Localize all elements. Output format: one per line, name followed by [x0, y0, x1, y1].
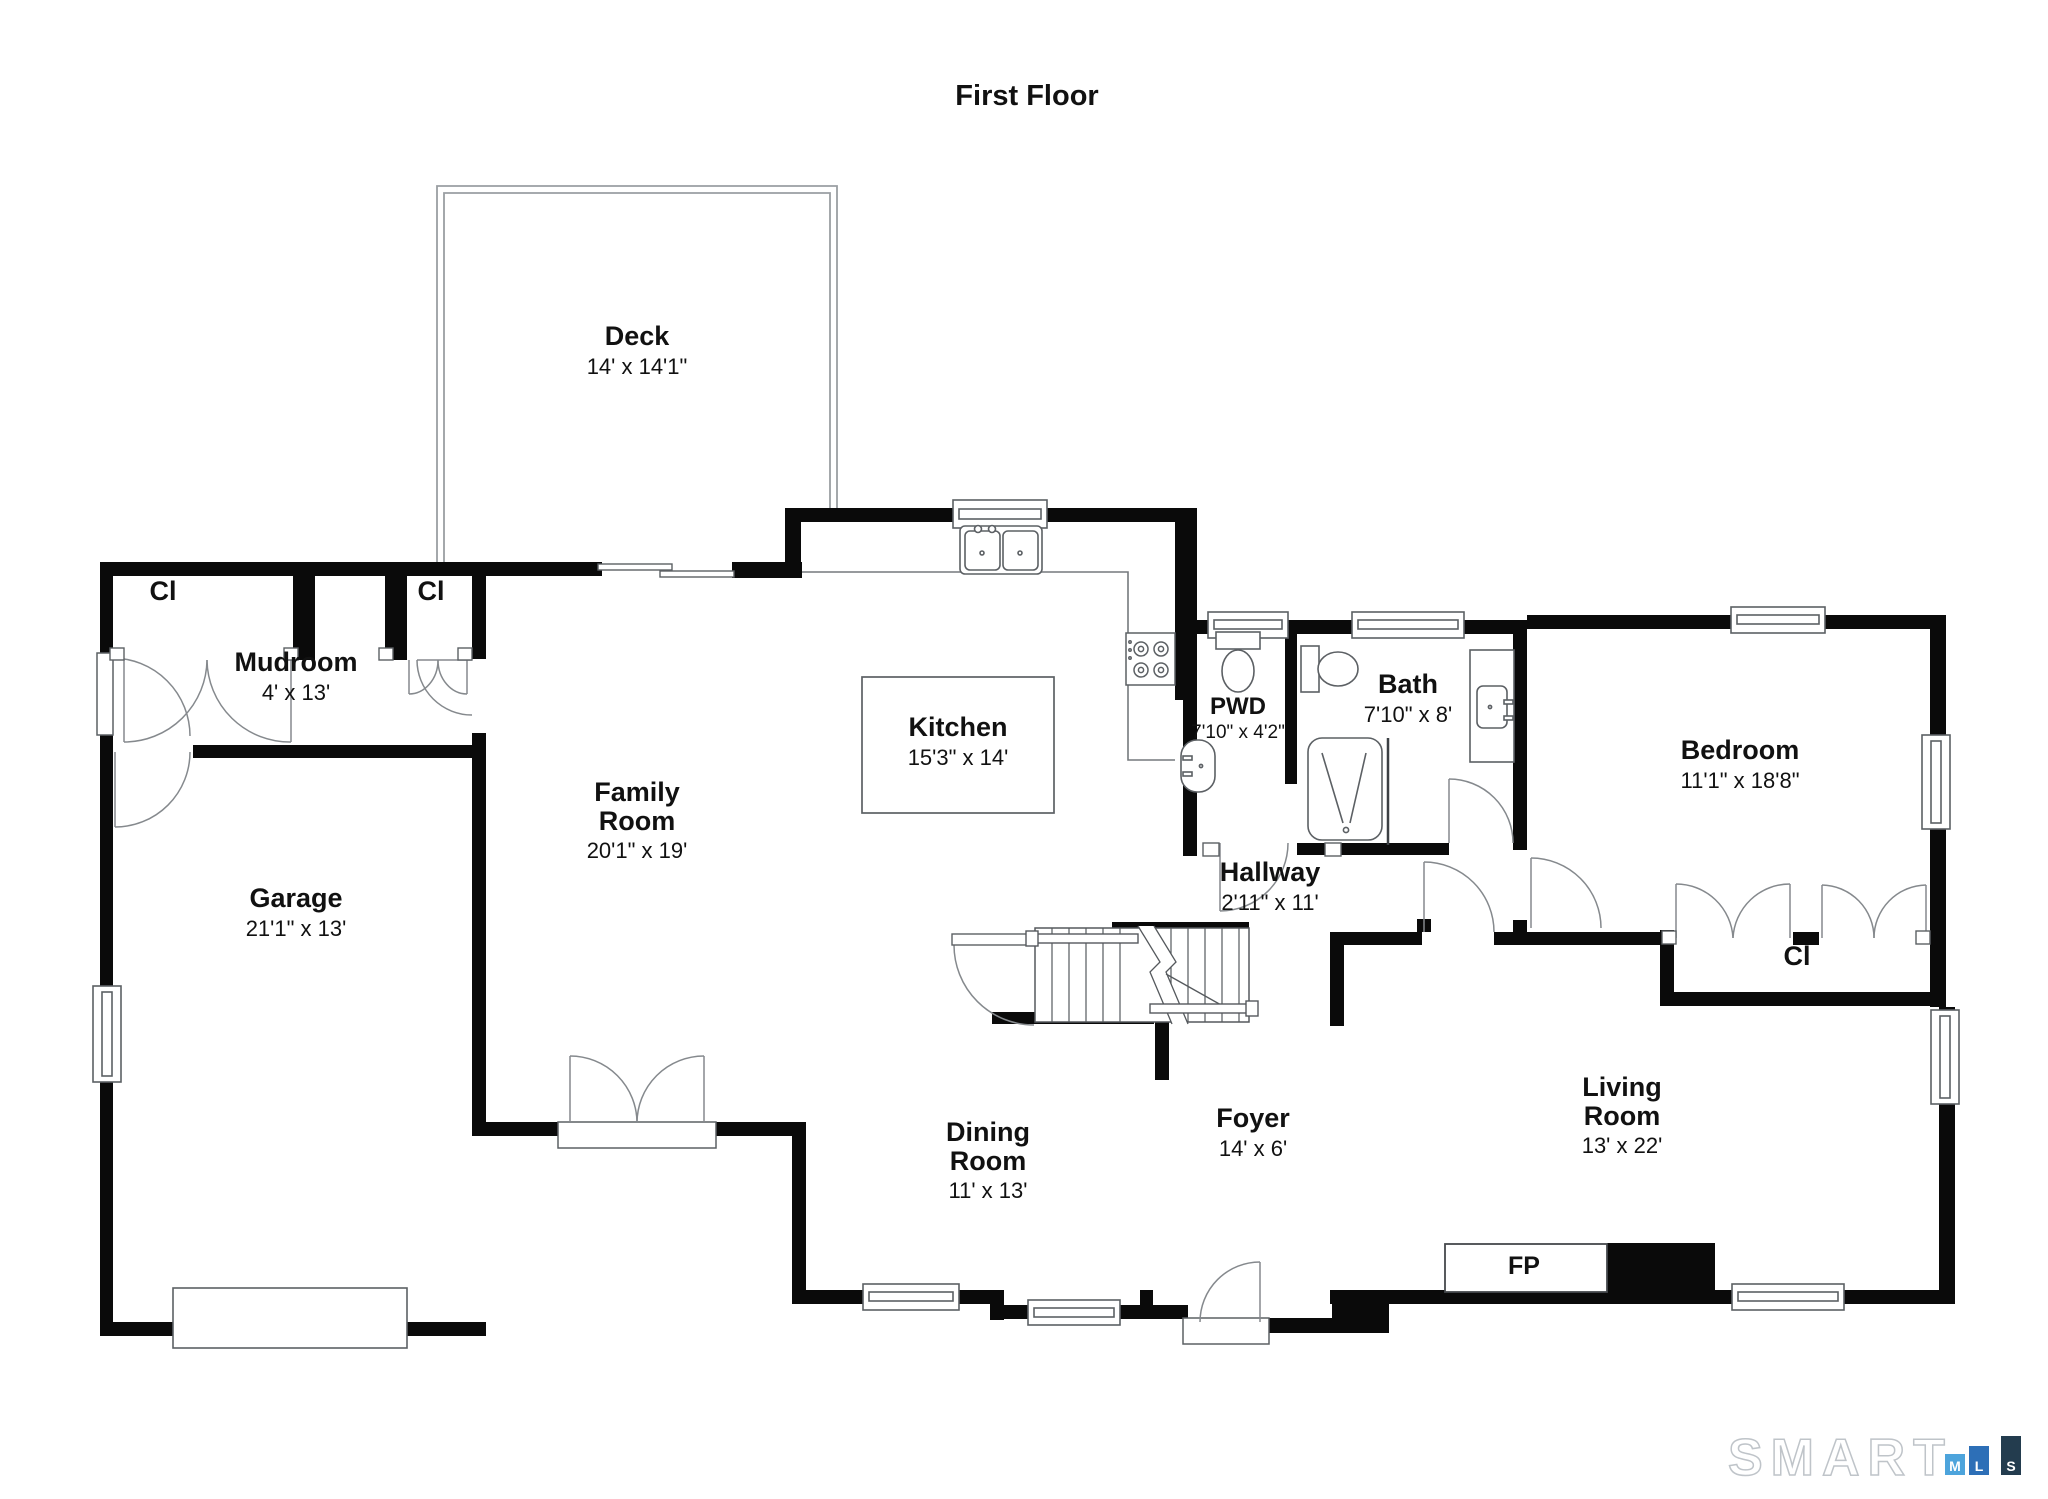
room-dims: 20'1" x 19'	[567, 838, 707, 864]
bedroom-closet-bifold-left	[1676, 884, 1790, 938]
room-dims: 21'1" x 13'	[246, 916, 347, 942]
bedroom-top-window	[1731, 607, 1825, 633]
living-room-door	[1424, 862, 1494, 932]
room-label-pwd: PWD 7'10" x 4'2"	[1191, 694, 1285, 744]
garage-left-window	[93, 986, 121, 1082]
room-name: Dining Room	[918, 1118, 1058, 1175]
french-door-threshold	[558, 1122, 716, 1148]
french-doors	[570, 1056, 704, 1123]
room-name: Hallway	[1220, 858, 1321, 887]
room-label-living-room: Living Room 13' x 22'	[1552, 1073, 1692, 1159]
chimney	[1607, 1243, 1715, 1290]
room-label-dining-room: Dining Room 11' x 13'	[918, 1118, 1058, 1204]
room-dims: 2'11" x 11'	[1220, 890, 1321, 916]
room-name: Garage	[246, 884, 347, 913]
room-label-kitchen: Kitchen 15'3" x 14'	[908, 713, 1009, 771]
pwd-sink	[1181, 740, 1215, 792]
floor-plan-page: { "title": "First Floor", "rooms": { "de…	[0, 0, 2048, 1499]
room-dims: 14' x 6'	[1216, 1136, 1290, 1162]
entry-door	[1200, 1262, 1260, 1322]
room-label-mudroom: Mudroom 4' x 13'	[235, 648, 358, 706]
room-dims: 4' x 13'	[235, 680, 358, 706]
stairs-door-leaf	[952, 934, 1034, 945]
smartmls-logo: SMART M L S	[1728, 1429, 2021, 1487]
bath-window	[1352, 612, 1464, 638]
room-name: Deck	[587, 322, 688, 351]
kitchen-sink	[960, 526, 1042, 575]
room-dims: 11' x 13'	[918, 1178, 1058, 1204]
room-name: Bath	[1364, 670, 1452, 699]
stairs	[1026, 926, 1258, 1024]
bath-toilet	[1301, 646, 1358, 692]
fireplace-label: FP	[1508, 1252, 1540, 1281]
foyer-bottom-window	[1028, 1300, 1120, 1325]
logo-word: SMART	[1728, 1429, 1953, 1487]
pwd-toilet	[1216, 632, 1260, 692]
room-name: Mudroom	[235, 648, 358, 677]
room-label-bedroom: Bedroom 11'1" x 18'8"	[1680, 736, 1799, 794]
room-name: Foyer	[1216, 1104, 1290, 1133]
room-name: Bedroom	[1680, 736, 1799, 765]
bedroom-right-window	[1922, 735, 1950, 829]
sliding-door	[598, 564, 734, 577]
closet-label-mudroom-left: Cl	[150, 576, 177, 607]
room-dims: 11'1" x 18'8"	[1680, 768, 1799, 794]
mudroom-exterior-door-leaf	[97, 653, 113, 735]
mudroom-garage-door	[115, 752, 190, 827]
room-label-garage: Garage 21'1" x 13'	[246, 884, 347, 942]
kitchen-window	[953, 500, 1047, 528]
garage-door	[173, 1288, 407, 1348]
stove	[1126, 633, 1175, 685]
bedroom-door	[1531, 858, 1601, 928]
page-title: First Floor	[955, 80, 1098, 113]
closet-label-mudroom-right: Cl	[418, 576, 445, 607]
room-dims: 13' x 22'	[1552, 1133, 1692, 1159]
room-dims: 7'10" x 8'	[1364, 702, 1452, 728]
room-name: Kitchen	[908, 713, 1009, 742]
room-label-foyer: Foyer 14' x 6'	[1216, 1104, 1290, 1162]
room-dims: 15'3" x 14'	[908, 745, 1009, 771]
logo-letter-s: S	[2006, 1458, 2015, 1474]
bedroom-closet-bifold-right	[1822, 885, 1926, 938]
living-room-bottom-window	[1732, 1284, 1844, 1310]
room-label-bath: Bath 7'10" x 8'	[1364, 670, 1452, 728]
room-label-hallway: Hallway 2'11" x 11'	[1220, 858, 1321, 916]
logo-letter-m: M	[1949, 1458, 1961, 1474]
living-room-right-window	[1931, 1010, 1959, 1104]
bath-shower	[1308, 738, 1382, 840]
dining-bottom-window	[863, 1284, 959, 1310]
room-dims: 7'10" x 4'2"	[1191, 722, 1285, 744]
room-label-deck: Deck 14' x 14'1"	[587, 322, 688, 380]
room-label-family-room: Family Room 20'1" x 19'	[567, 778, 707, 864]
bath-vanity	[1470, 650, 1514, 762]
entry-door-threshold	[1183, 1318, 1269, 1344]
room-name: PWD	[1191, 694, 1285, 719]
bath-door	[1449, 779, 1513, 843]
logo-letter-l: L	[1975, 1458, 1984, 1474]
room-name: Living Room	[1552, 1073, 1692, 1130]
room-name: Family Room	[567, 778, 707, 835]
room-dims: 14' x 14'1"	[587, 354, 688, 380]
closet-label-bedroom: Cl	[1784, 941, 1811, 972]
